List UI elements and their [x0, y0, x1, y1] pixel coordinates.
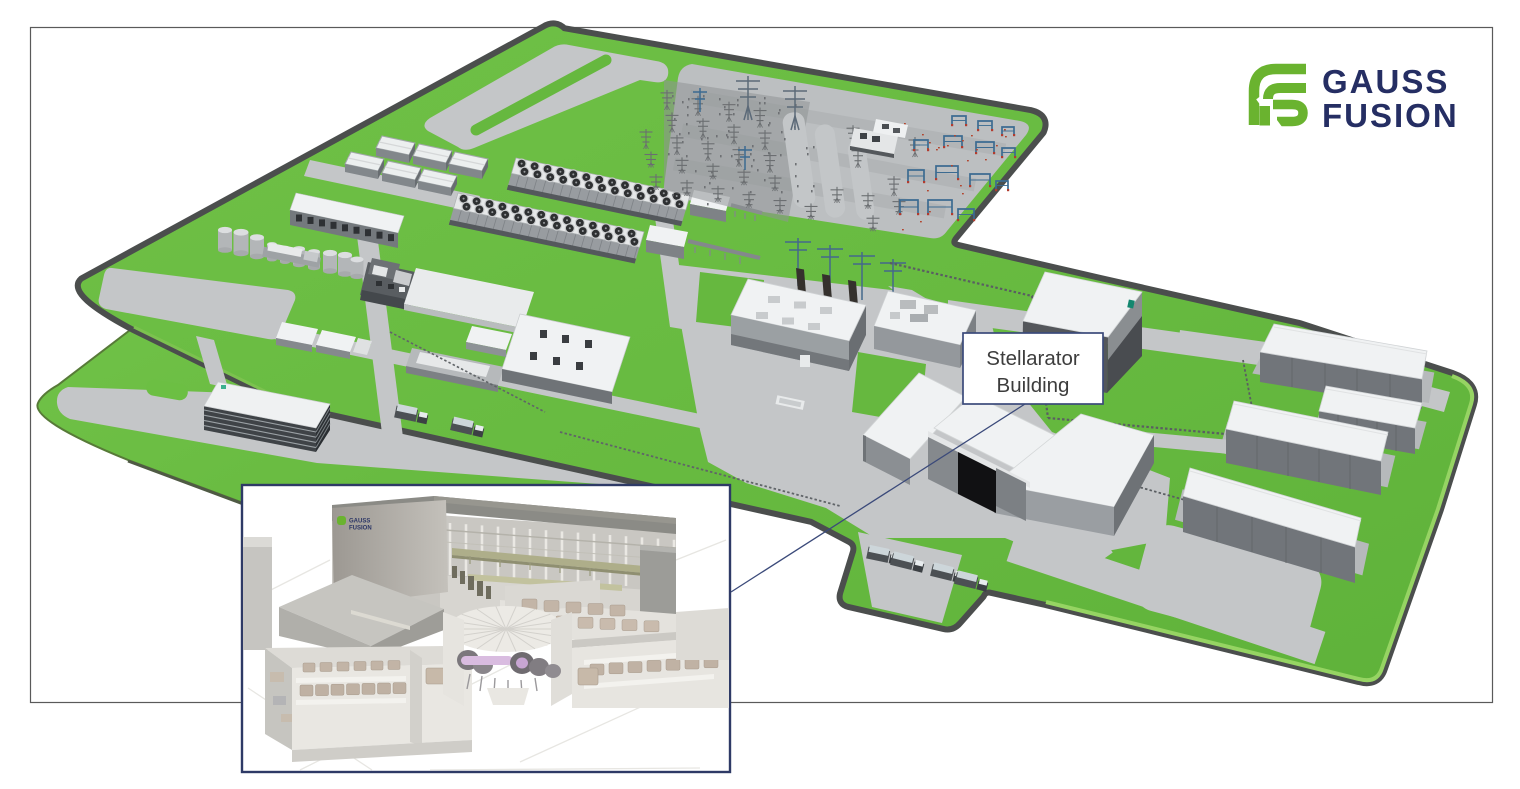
svg-text:Building: Building — [997, 374, 1070, 397]
svg-text:FUSION: FUSION — [349, 526, 372, 532]
svg-text:GAUSS: GAUSS — [1322, 63, 1449, 100]
svg-text:FUSION: FUSION — [1322, 97, 1459, 134]
svg-text:GAUSS: GAUSS — [349, 519, 370, 525]
svg-text:Stellarator: Stellarator — [986, 347, 1080, 370]
